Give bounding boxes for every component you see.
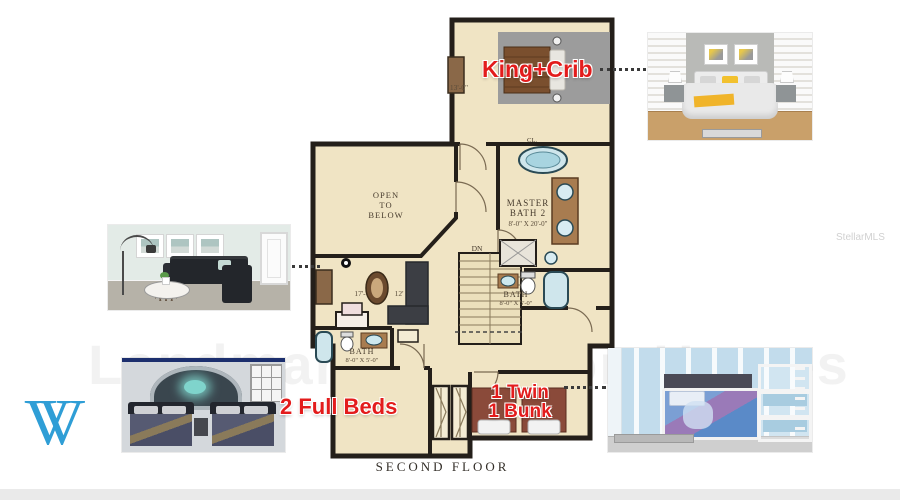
curtain bbox=[608, 348, 622, 438]
photo-loft-living-room bbox=[108, 225, 290, 310]
lamp-pole bbox=[122, 251, 124, 295]
door bbox=[260, 232, 288, 285]
lamp bbox=[668, 71, 682, 83]
seascape-art bbox=[196, 234, 224, 258]
wall-art bbox=[734, 44, 758, 65]
lamp-shade bbox=[146, 245, 156, 253]
label-bedroom2-dims: 13'-0" bbox=[450, 83, 468, 92]
hyperspace-glow bbox=[184, 380, 206, 394]
label-master-bath-dims: 8'-0" X 20'-0" bbox=[509, 220, 548, 228]
lamp bbox=[780, 71, 794, 83]
leader-line-king bbox=[600, 68, 646, 71]
label-stairs-down: DN bbox=[472, 244, 483, 253]
bottom-edge-band bbox=[0, 489, 900, 500]
photo-caption-bar bbox=[614, 434, 694, 443]
photo-frozen-twin-bunk bbox=[608, 348, 812, 452]
label-loft-dims-right: 12' bbox=[395, 289, 405, 298]
label-open-2: TO bbox=[379, 200, 392, 210]
twin-bed-frozen bbox=[662, 388, 760, 440]
seascape-art bbox=[166, 234, 194, 258]
plant-pot bbox=[162, 277, 170, 285]
nightstand bbox=[776, 85, 796, 102]
label-loft-dims-left: 17'- bbox=[354, 289, 366, 298]
linen-shelf bbox=[398, 330, 418, 342]
sofa-chaise bbox=[222, 265, 252, 303]
vacation-rental-logo: V V bbox=[24, 390, 104, 462]
photo-star-wars-full-beds bbox=[122, 358, 285, 452]
full-bed bbox=[210, 402, 276, 448]
photo-caption-bar bbox=[702, 129, 762, 138]
annotation-king-crib: King+Crib bbox=[482, 56, 593, 83]
label-open-1: OPEN bbox=[373, 190, 399, 200]
leader-line-living bbox=[292, 265, 320, 268]
wall-art bbox=[704, 44, 728, 65]
bunk-bed bbox=[758, 364, 812, 442]
nightstand bbox=[664, 85, 684, 102]
window bbox=[250, 364, 282, 402]
full-bed bbox=[128, 402, 194, 448]
nightstand bbox=[194, 418, 208, 436]
floor-plan-title: SECOND FLOOR bbox=[350, 459, 535, 475]
label-bath3-dims: 8'-0" X 5'-0" bbox=[346, 357, 379, 364]
label-bath2: BATH bbox=[504, 290, 529, 299]
label-bath2-dims: 8'-0" X 5'-0" bbox=[500, 300, 533, 307]
leader-line-bunk bbox=[564, 386, 606, 389]
label-closet: CL. bbox=[527, 137, 537, 144]
label-bath3: BATH bbox=[350, 347, 375, 356]
border-stripe bbox=[122, 358, 285, 362]
annotation-two-full-beds: 2 Full Beds bbox=[280, 394, 397, 420]
annotation-one-bunk: 1 Bunk bbox=[478, 401, 562, 423]
photo-king-bedroom bbox=[648, 33, 812, 140]
logo-letter-overlay: V bbox=[38, 390, 86, 456]
label-open-3: BELOW bbox=[368, 210, 403, 220]
label-master-bath-2: BATH 2 bbox=[510, 208, 546, 218]
listing-floorplan-image: Landmark Vacation Homes StellarMLS bbox=[0, 0, 900, 500]
label-master-bath-1: MASTER bbox=[507, 198, 550, 208]
